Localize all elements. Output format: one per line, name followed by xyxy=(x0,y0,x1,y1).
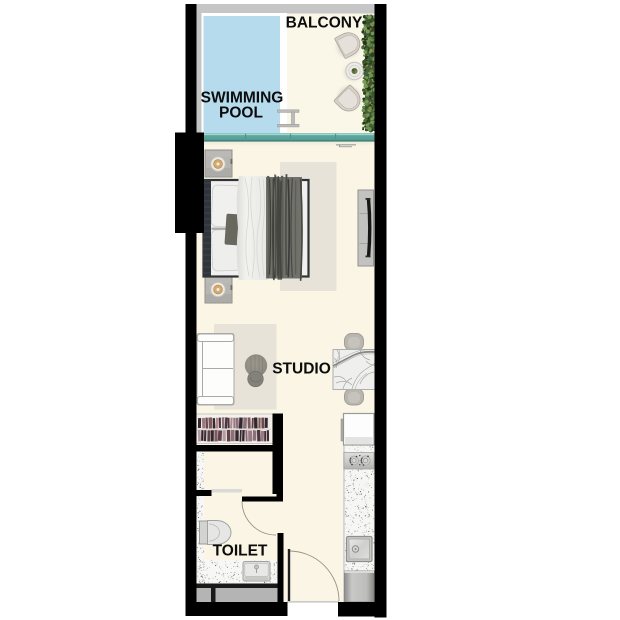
svg-text:STUDIO: STUDIO xyxy=(272,361,331,378)
svg-text:TOILET: TOILET xyxy=(213,543,268,560)
svg-text:POOL: POOL xyxy=(219,105,263,122)
svg-text:BALCONY: BALCONY xyxy=(286,15,363,32)
